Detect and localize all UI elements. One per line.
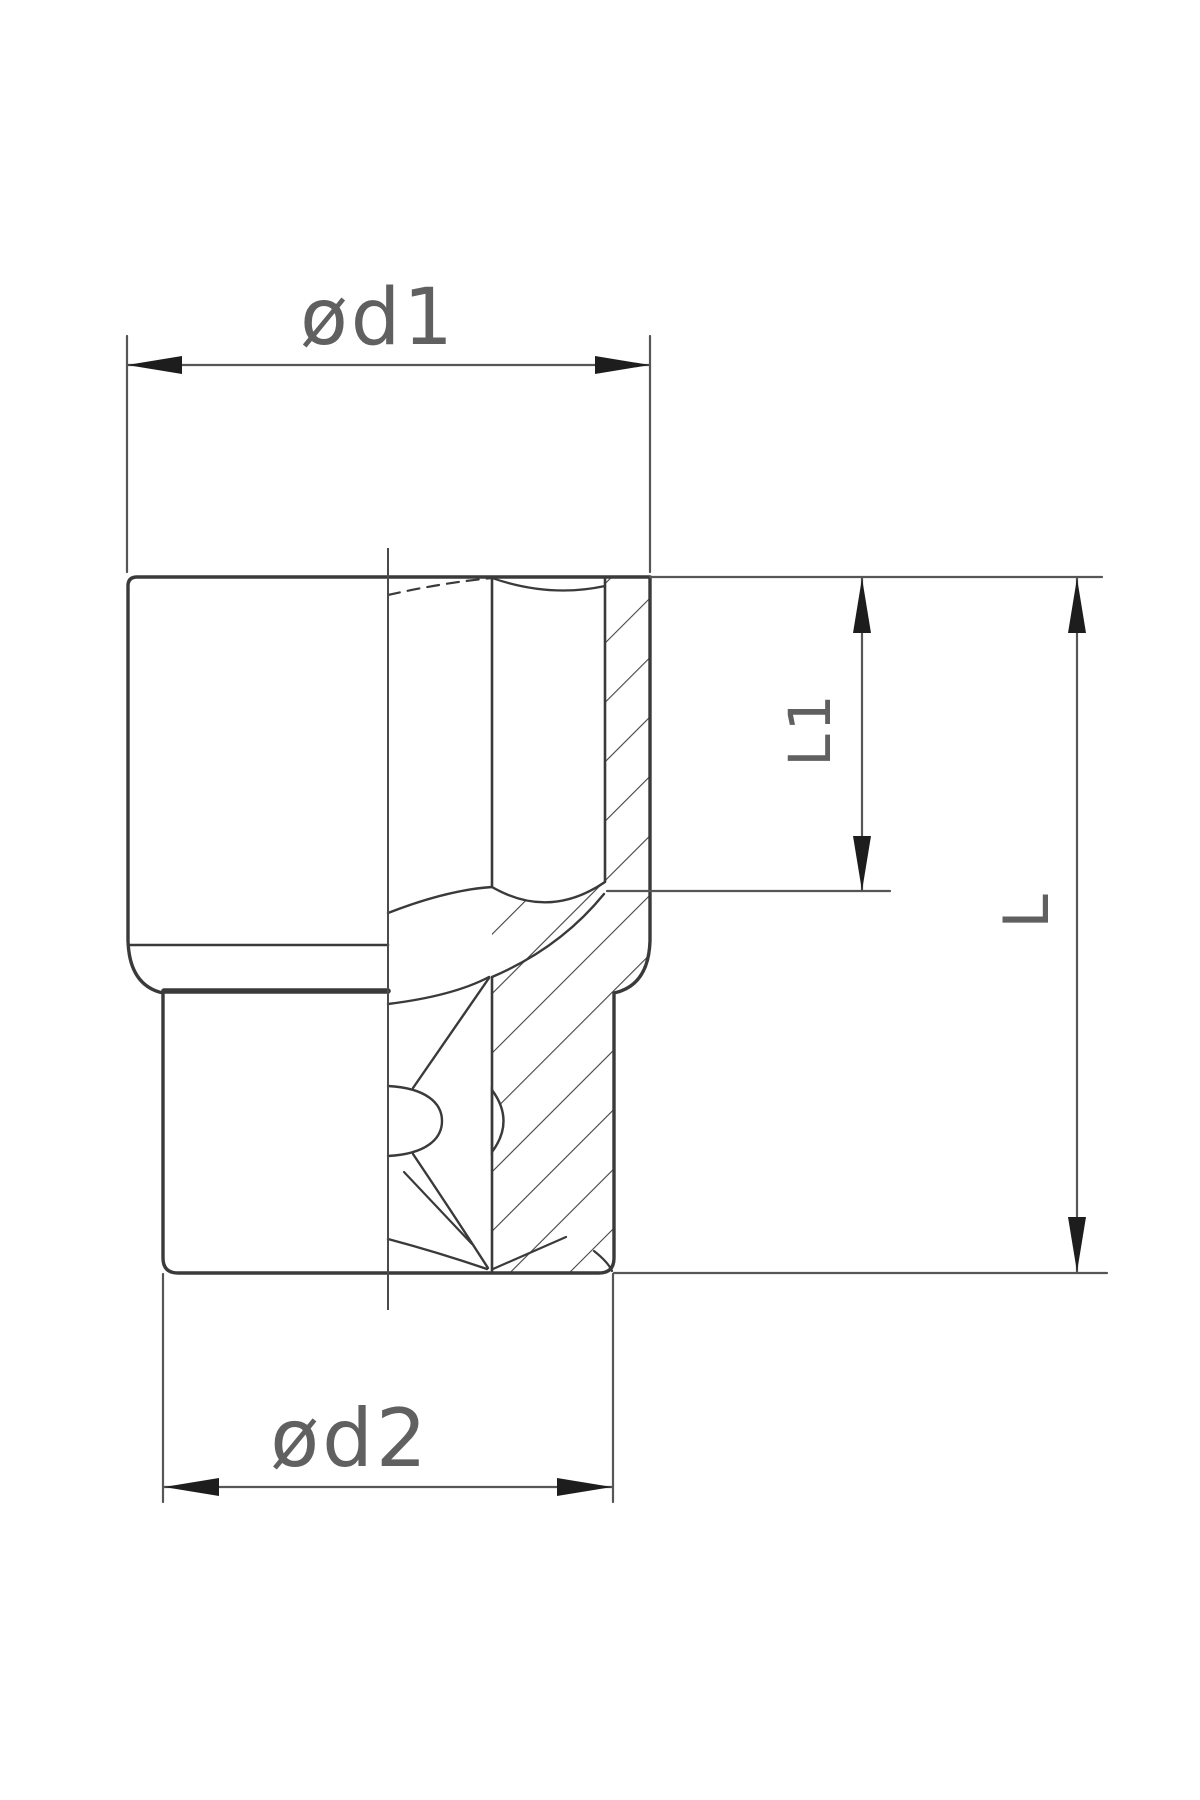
od1-label: ød1	[300, 273, 456, 363]
l1-label: L1	[776, 691, 844, 766]
socket-cross-section-drawing: ød1 ød2 L1 L	[0, 0, 1200, 1800]
l-label: L	[990, 891, 1063, 929]
od2-label: ød2	[270, 1392, 430, 1485]
technical-drawing-page: ød1 ød2 L1 L	[0, 0, 1200, 1800]
